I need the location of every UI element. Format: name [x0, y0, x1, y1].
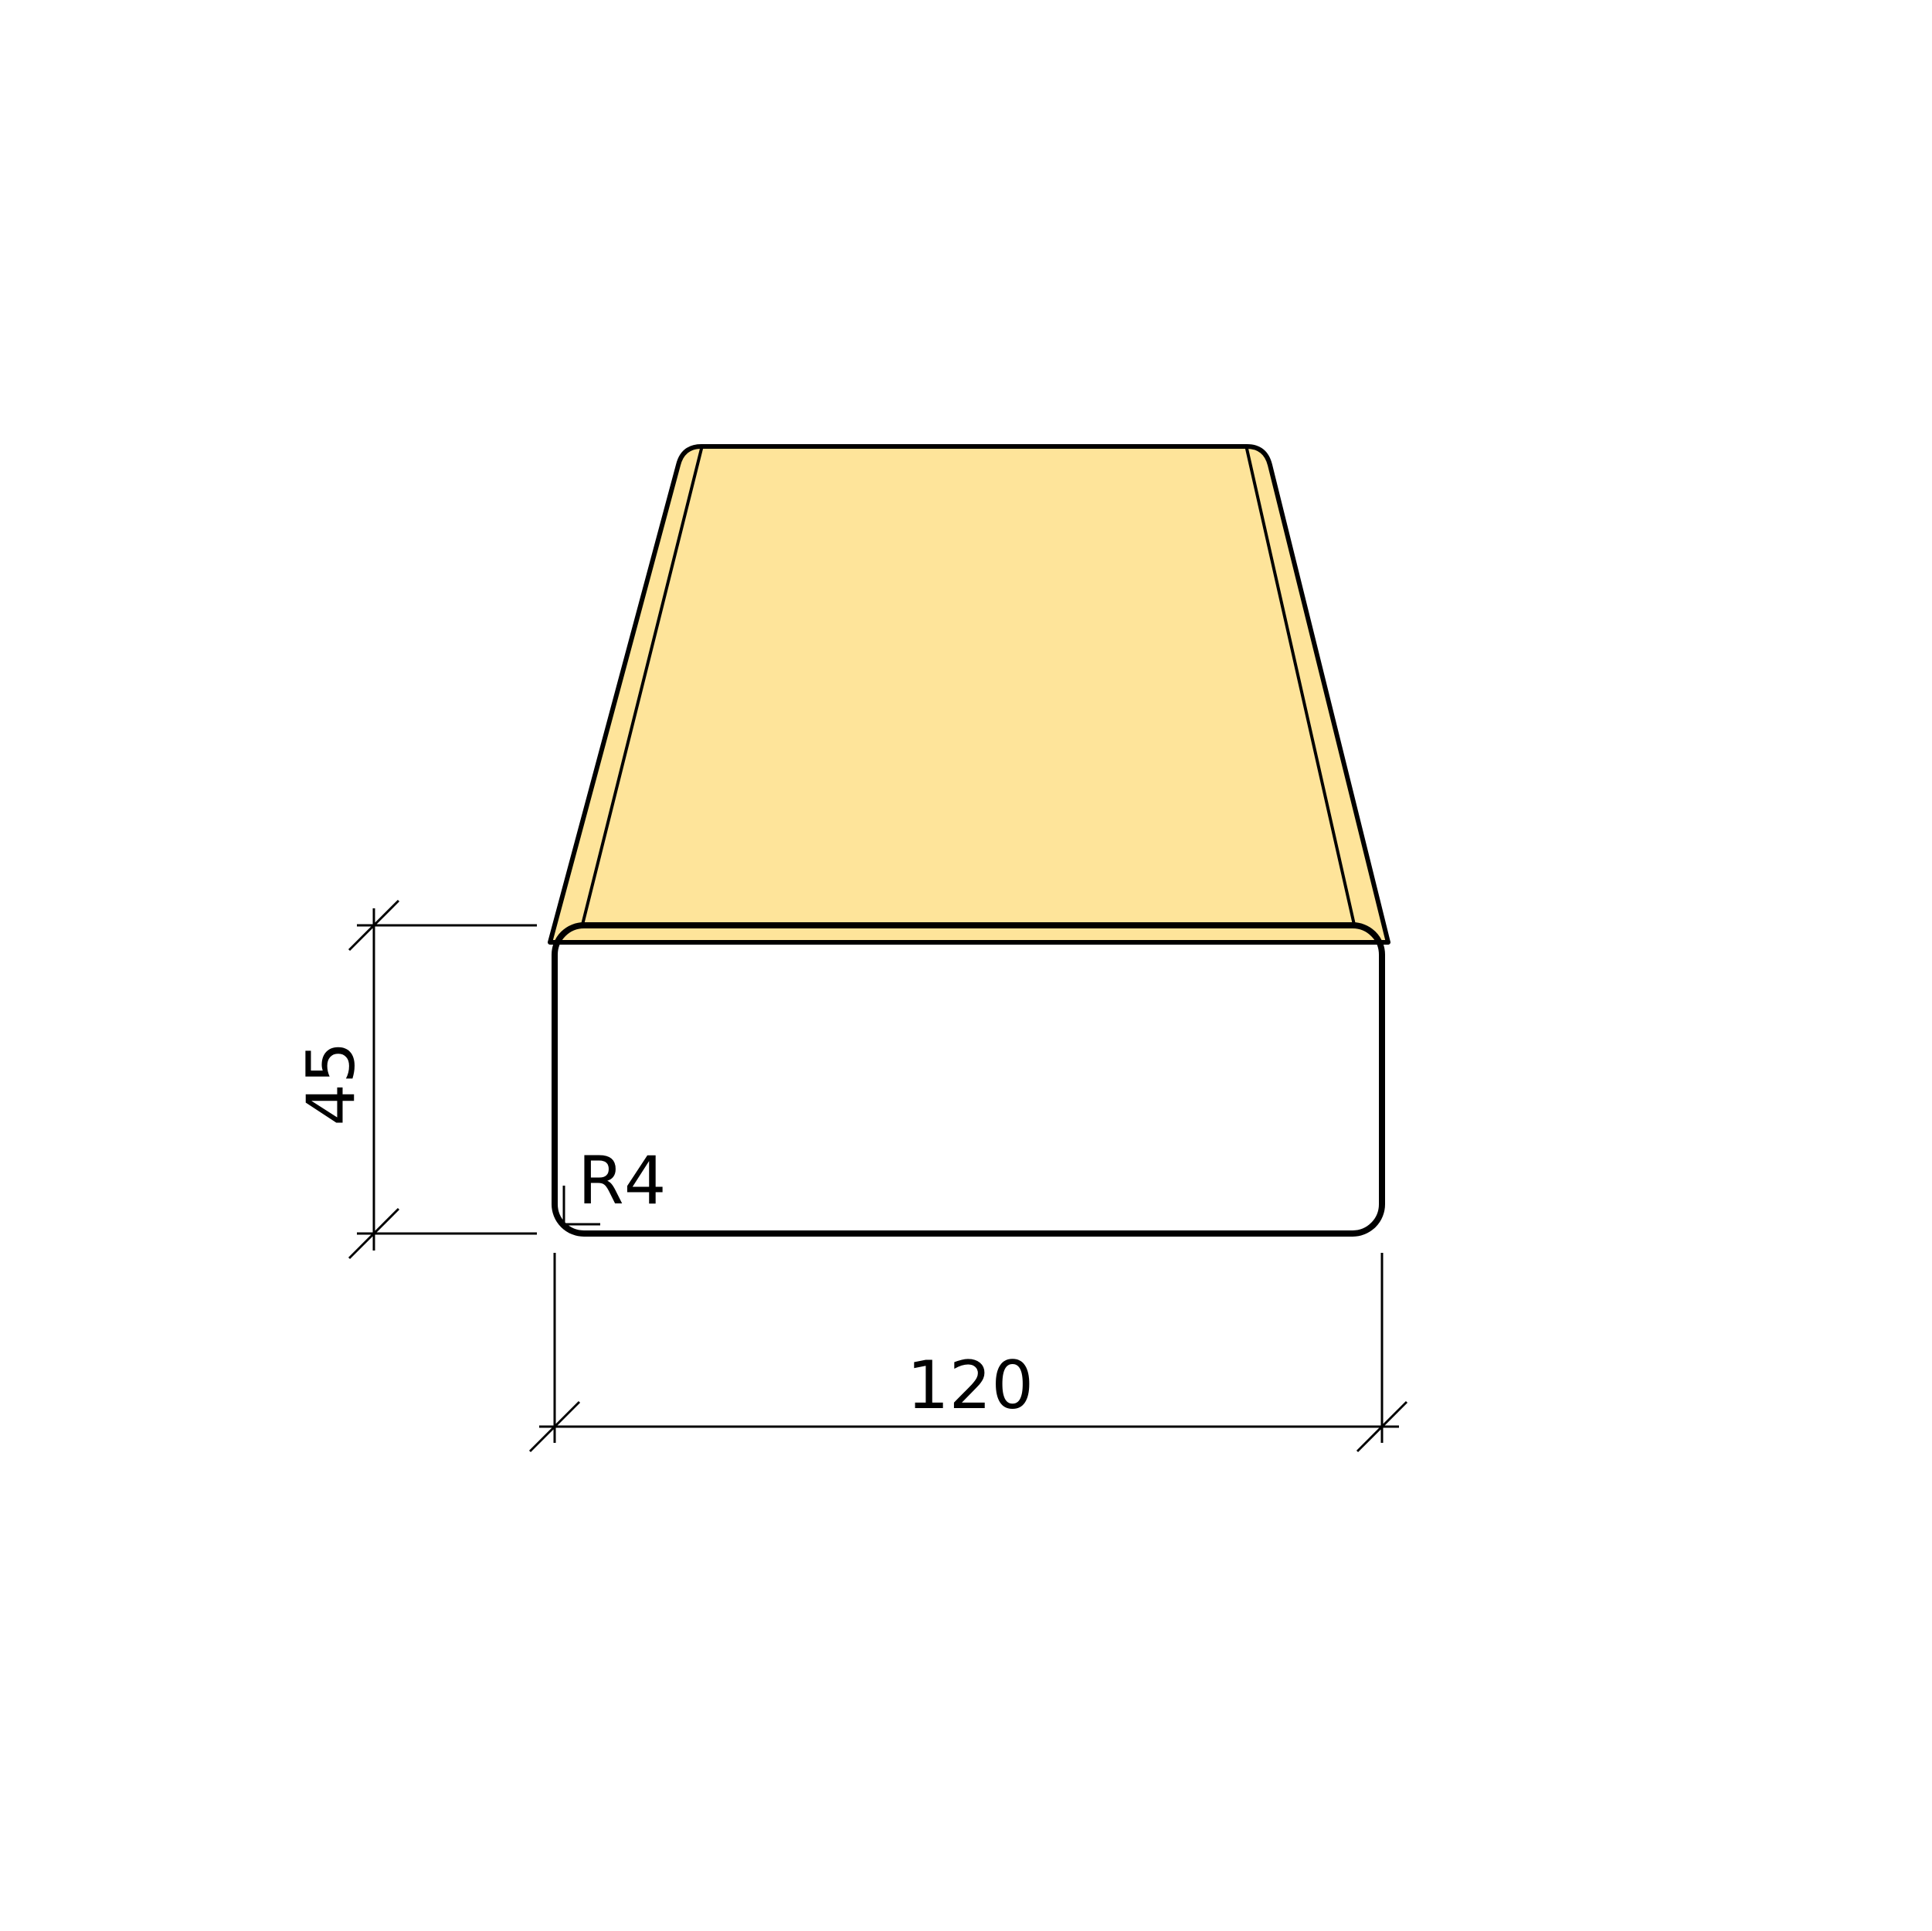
- height-dimension: 45: [293, 901, 537, 1258]
- timber-front-face: [555, 925, 1382, 1234]
- timber-profile-drawing: 45 120 R4: [0, 0, 1932, 1931]
- corner-radius-label: R4: [578, 1142, 666, 1220]
- width-dimension: 120: [530, 1253, 1407, 1451]
- corner-radius-annotation: R4: [564, 1142, 666, 1224]
- width-dimension-label: 120: [907, 1347, 1034, 1424]
- drawing-area: 45 120 R4: [0, 0, 1932, 1931]
- height-dimension-label: 45: [293, 1041, 370, 1125]
